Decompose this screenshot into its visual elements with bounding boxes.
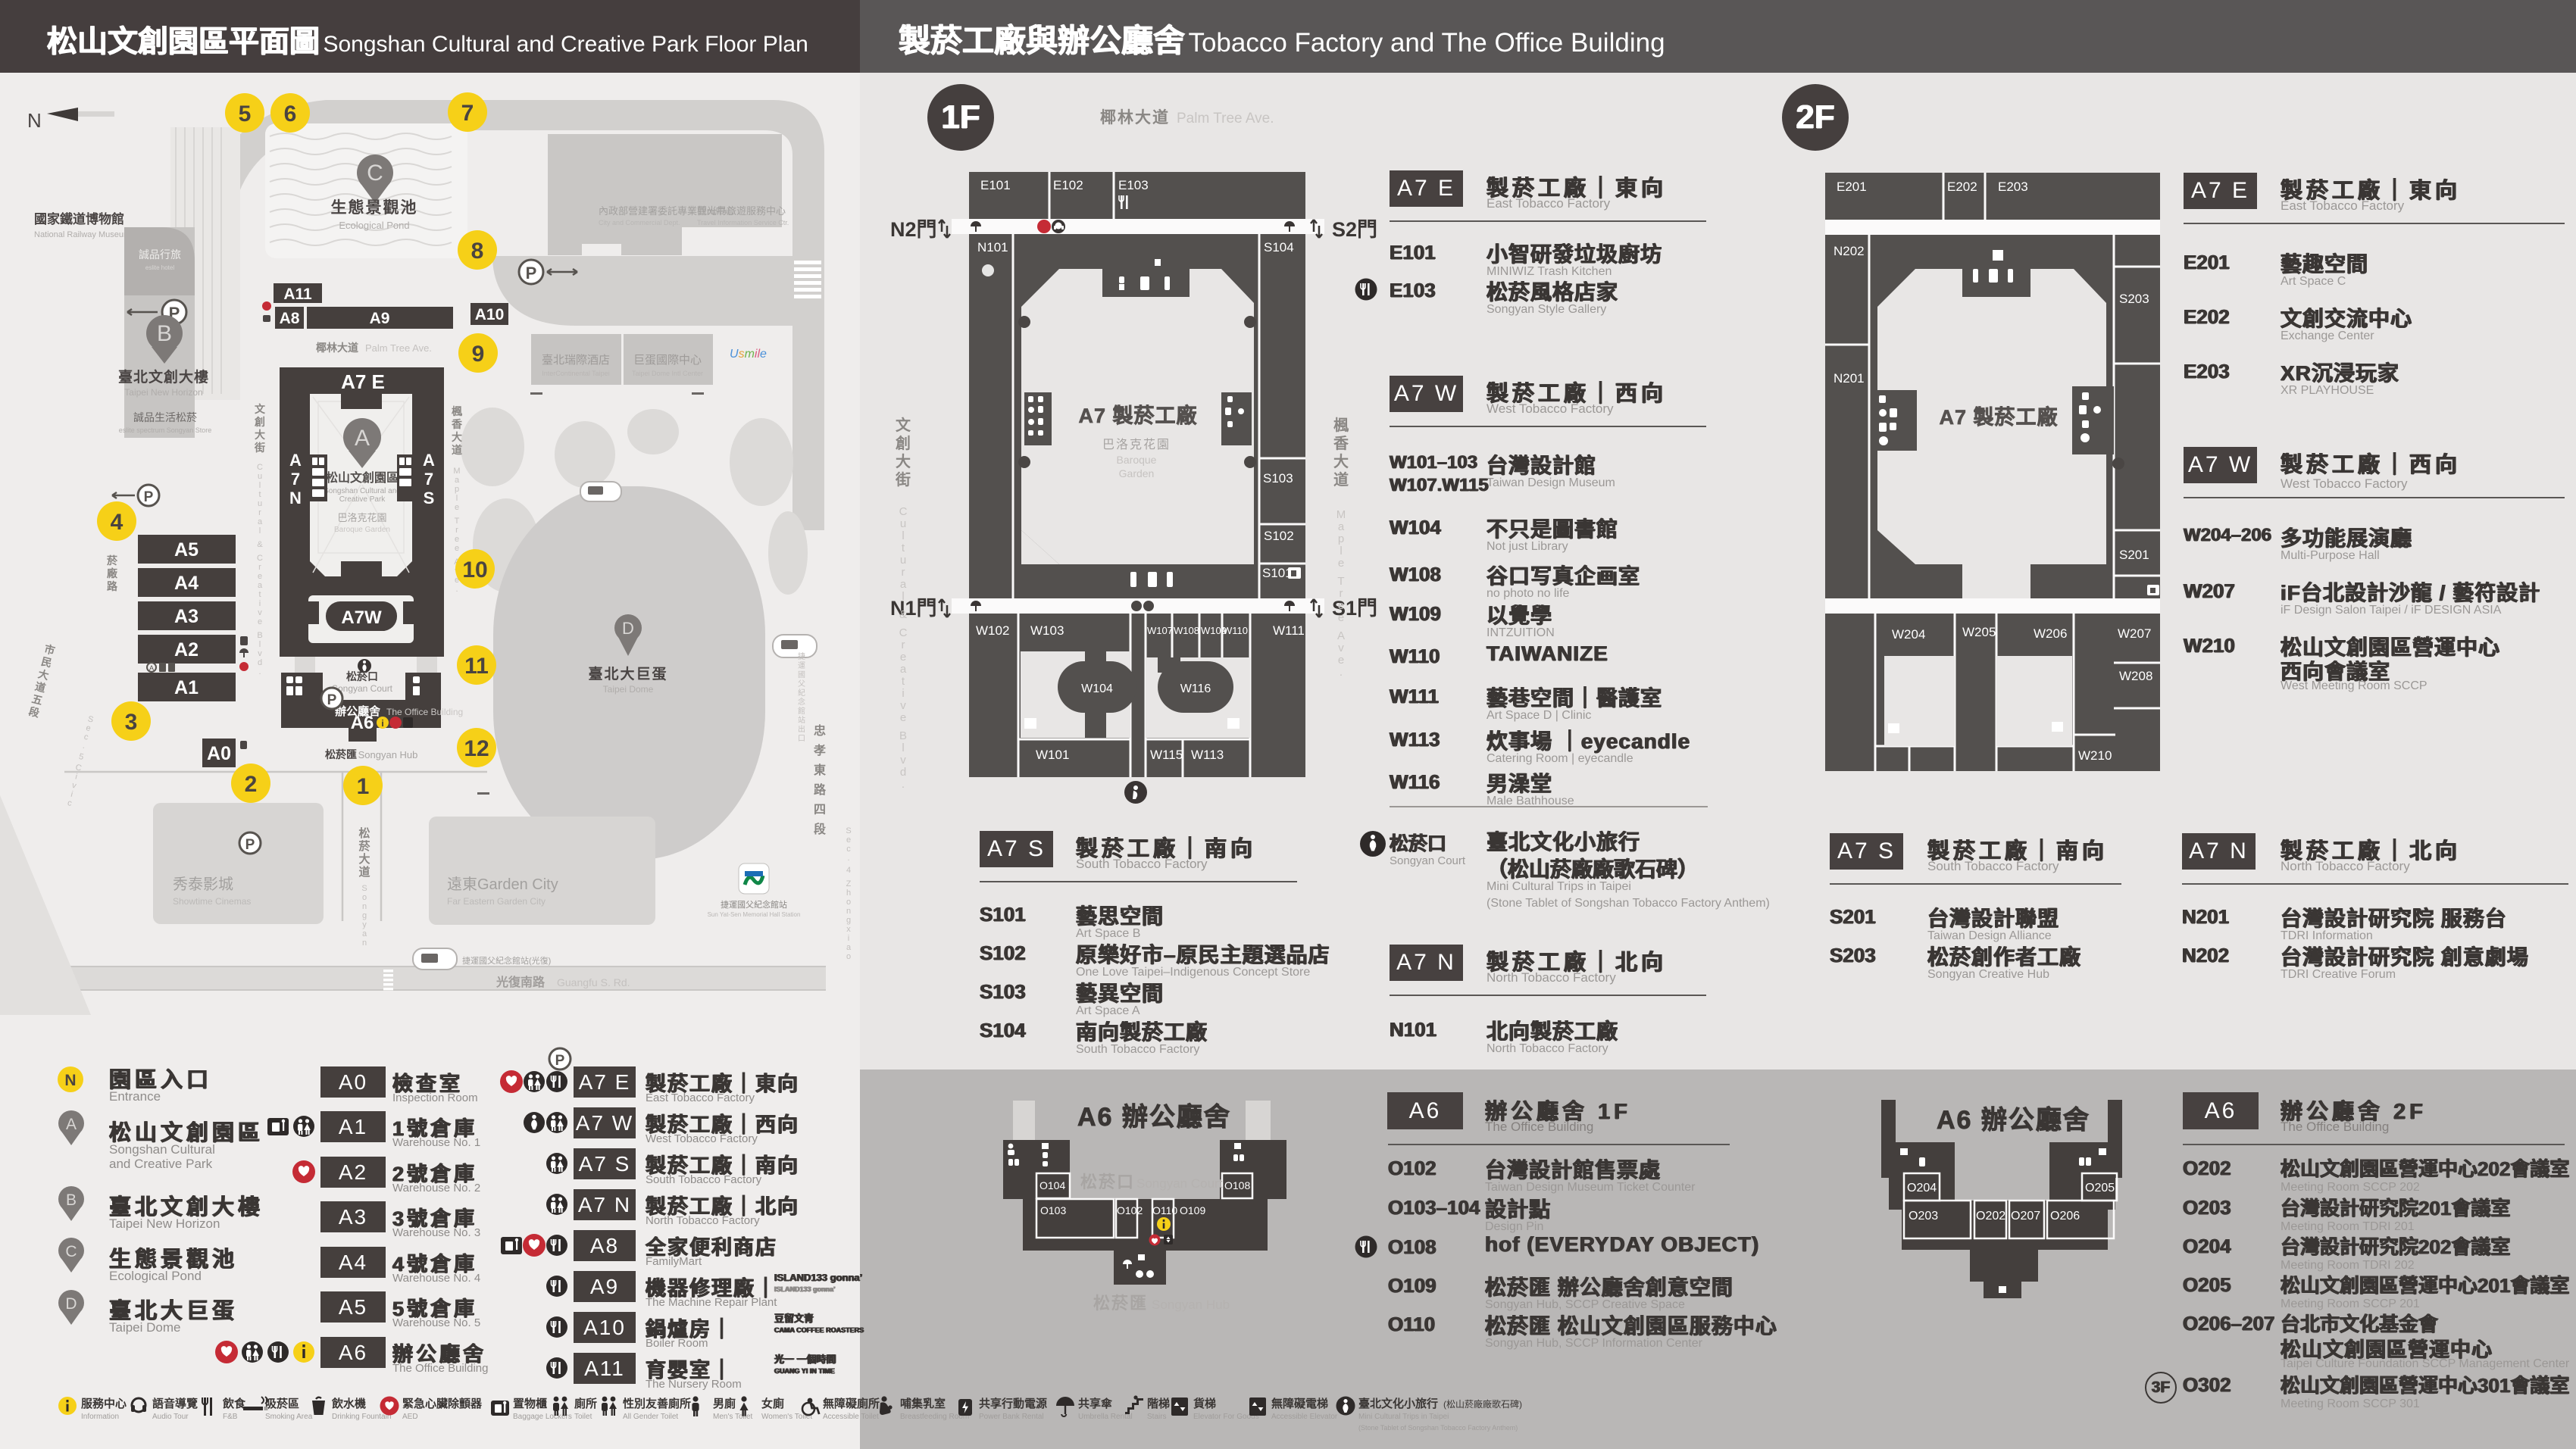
svg-text:6: 6 xyxy=(284,101,297,126)
svg-text:觀光局旅遊服務中心: 觀光局旅遊服務中心 xyxy=(697,205,786,217)
svg-text:T: T xyxy=(1337,575,1344,588)
svg-text:t: t xyxy=(902,675,905,688)
svg-text:道: 道 xyxy=(358,865,370,879)
svg-text:l: l xyxy=(456,494,458,503)
svg-text:A6: A6 xyxy=(351,713,374,733)
svg-text:W204: W204 xyxy=(1892,627,1925,642)
svg-text:i: i xyxy=(74,772,78,781)
svg-text:10: 10 xyxy=(462,557,487,582)
svg-text:A11: A11 xyxy=(283,286,312,303)
svg-text:u: u xyxy=(900,517,906,530)
svg-text:O203: O203 xyxy=(1909,1210,1938,1223)
svg-text:椰林大道: 椰林大道 xyxy=(316,342,358,354)
svg-text:大: 大 xyxy=(452,431,462,443)
svg-text:W103: W103 xyxy=(1030,623,1064,638)
svg-text:e: e xyxy=(900,651,906,664)
svg-text:C: C xyxy=(899,505,908,518)
svg-text:l: l xyxy=(259,526,261,536)
svg-text:N101: N101 xyxy=(977,240,1008,255)
svg-text:2: 2 xyxy=(245,772,258,797)
svg-text:E203: E203 xyxy=(1998,180,2028,194)
svg-text:哺集乳室: 哺集乳室 xyxy=(900,1397,946,1410)
svg-text:A7 E: A7 E xyxy=(579,1070,631,1094)
svg-text:e: e xyxy=(900,711,906,724)
svg-text:e: e xyxy=(1338,599,1344,612)
svg-text:9: 9 xyxy=(472,342,485,367)
svg-text:光復南路: 光復南路 xyxy=(496,975,546,989)
svg-text:語音導覽: 語音導覽 xyxy=(152,1397,198,1410)
svg-text:N1門: N1門 xyxy=(890,597,937,620)
svg-text:a: a xyxy=(258,517,263,526)
svg-text:無障礙廁所: 無障礙廁所 xyxy=(823,1397,880,1410)
svg-text:道: 道 xyxy=(452,444,462,456)
svg-text:S104: S104 xyxy=(1264,240,1294,255)
svg-text:段: 段 xyxy=(814,822,827,836)
svg-text:街: 街 xyxy=(895,470,911,489)
svg-text:o: o xyxy=(846,952,851,961)
svg-text:1: 1 xyxy=(357,774,370,799)
svg-text:貨梯: 貨梯 xyxy=(1193,1397,1216,1410)
svg-text:City and Commercial Dept.: City and Commercial Dept. xyxy=(599,219,680,226)
svg-text:松菸匯: 松菸匯 xyxy=(325,748,357,760)
svg-text:A7 製菸工廠: A7 製菸工廠 xyxy=(1939,405,2058,429)
svg-text:P: P xyxy=(245,837,255,853)
svg-text:d: d xyxy=(900,766,906,779)
svg-text:.: . xyxy=(82,742,86,751)
svg-text:路: 路 xyxy=(107,580,118,592)
svg-text:E202: E202 xyxy=(1947,180,1977,194)
svg-text:S: S xyxy=(846,826,851,835)
svg-text:S203: S203 xyxy=(2119,292,2149,306)
svg-text:A: A xyxy=(149,664,154,672)
svg-text:l: l xyxy=(259,640,261,649)
svg-text:M: M xyxy=(453,467,460,476)
svg-text:Far Eastern Garden City: Far Eastern Garden City xyxy=(447,896,546,907)
svg-text:D: D xyxy=(65,1295,77,1313)
svg-text:站: 站 xyxy=(798,715,805,725)
svg-text:l: l xyxy=(1340,545,1342,557)
svg-text:W207: W207 xyxy=(2118,626,2151,641)
svg-text:.: . xyxy=(455,585,458,594)
svg-text:椰林大道: 椰林大道 xyxy=(1100,108,1170,126)
svg-text:C: C xyxy=(65,1243,77,1260)
svg-text:W107: W107 xyxy=(1147,625,1173,636)
svg-text:i: i xyxy=(381,718,383,729)
svg-text:Drinking Fountain: Drinking Fountain xyxy=(332,1413,391,1421)
svg-text:Songyan Hub: Songyan Hub xyxy=(358,749,418,760)
svg-text:服務中心: 服務中心 xyxy=(81,1397,127,1410)
svg-text:11: 11 xyxy=(464,654,489,679)
svg-text:e: e xyxy=(455,503,459,512)
svg-text:A8: A8 xyxy=(590,1234,619,1257)
svg-text:O206: O206 xyxy=(2050,1210,2080,1223)
svg-text:A7 E: A7 E xyxy=(341,370,385,393)
svg-text:e: e xyxy=(1338,654,1344,667)
svg-text:i: i xyxy=(70,790,73,799)
svg-text:e: e xyxy=(846,835,851,845)
svg-text:W111: W111 xyxy=(1273,623,1305,638)
svg-text:r: r xyxy=(902,639,905,651)
svg-text:W102: W102 xyxy=(976,623,1009,638)
svg-text:A: A xyxy=(1337,629,1345,642)
svg-text:F&B: F&B xyxy=(223,1413,238,1421)
svg-text:A5: A5 xyxy=(174,539,199,561)
svg-text:性別友善廁所: 性別友善廁所 xyxy=(623,1397,691,1410)
svg-text:Songyan Hub: Songyan Hub xyxy=(1152,1298,1230,1312)
svg-text:A1: A1 xyxy=(339,1115,367,1138)
svg-text:.: . xyxy=(902,778,905,791)
svg-text:&: & xyxy=(257,540,263,549)
svg-text:巴洛克花園: 巴洛克花園 xyxy=(1102,438,1171,451)
svg-text:念: 念 xyxy=(798,697,805,707)
svg-text:道: 道 xyxy=(1333,470,1349,489)
svg-text:n: n xyxy=(362,902,367,911)
svg-text:緊急心臟除顫器: 緊急心臟除顫器 xyxy=(402,1397,483,1410)
svg-text:O202: O202 xyxy=(1976,1210,2005,1223)
svg-text:v: v xyxy=(258,608,262,617)
svg-text:A6 辦公廳舍: A6 辦公廳舍 xyxy=(1077,1102,1231,1132)
svg-text:O109: O109 xyxy=(1180,1204,1205,1216)
svg-text:S: S xyxy=(361,884,367,893)
svg-text:Audio Tour: Audio Tour xyxy=(152,1413,189,1421)
svg-text:W104: W104 xyxy=(1081,682,1113,695)
svg-text:Taipei New Horizon: Taipei New Horizon xyxy=(124,387,202,398)
svg-text:e: e xyxy=(455,535,459,544)
svg-text:E101: E101 xyxy=(980,178,1011,192)
svg-text:12: 12 xyxy=(464,736,489,761)
svg-text:Showtime Cinemas: Showtime Cinemas xyxy=(173,896,251,907)
svg-text:N: N xyxy=(289,489,302,507)
svg-text:A8: A8 xyxy=(280,310,300,327)
svg-text:香: 香 xyxy=(451,418,463,430)
svg-text:t: t xyxy=(902,542,905,554)
svg-text:大: 大 xyxy=(358,852,370,866)
svg-text:The Office Building: The Office Building xyxy=(386,707,463,717)
svg-text:i: i xyxy=(259,599,261,608)
svg-text:B: B xyxy=(66,1191,77,1209)
svg-text:A: A xyxy=(355,426,370,451)
svg-text:Usmile: Usmile xyxy=(730,348,767,361)
svg-text:W205: W205 xyxy=(1962,625,1996,639)
svg-text:O110: O110 xyxy=(1152,1204,1177,1216)
svg-text:N201: N201 xyxy=(1834,371,1865,386)
svg-text:松菸口: 松菸口 xyxy=(346,670,378,682)
svg-text:r: r xyxy=(902,566,905,579)
svg-text:e: e xyxy=(258,572,262,581)
svg-text:菸: 菸 xyxy=(358,839,370,853)
svg-text:道: 道 xyxy=(33,680,46,695)
svg-text:d: d xyxy=(258,658,262,667)
svg-text:5: 5 xyxy=(239,101,252,126)
svg-text:廁所: 廁所 xyxy=(574,1397,597,1410)
svg-text:A1: A1 xyxy=(174,677,199,698)
svg-text:共享行動電源: 共享行動電源 xyxy=(979,1397,1047,1410)
svg-text:A6 辦公廳舍: A6 辦公廳舍 xyxy=(1937,1105,2090,1135)
svg-text:出: 出 xyxy=(798,724,805,734)
svg-text:文: 文 xyxy=(896,416,911,434)
svg-text:楓: 楓 xyxy=(452,405,463,417)
svg-text:n: n xyxy=(362,938,367,948)
svg-text:C: C xyxy=(257,554,263,563)
svg-text:大: 大 xyxy=(1333,453,1349,470)
svg-text:遠東Garden City: 遠東Garden City xyxy=(447,876,558,893)
svg-text:五: 五 xyxy=(30,692,43,707)
svg-text:A10: A10 xyxy=(475,306,505,323)
svg-text:l: l xyxy=(259,481,261,490)
svg-text:A7 製菸工廠: A7 製菸工廠 xyxy=(1078,404,1197,427)
svg-text:Songyan Court: Songyan Court xyxy=(1136,1176,1223,1191)
svg-text:Smoking Area: Smoking Area xyxy=(265,1413,313,1421)
svg-text:8: 8 xyxy=(471,239,484,264)
svg-text:a: a xyxy=(900,663,907,676)
svg-text:大: 大 xyxy=(896,453,911,470)
svg-text:O103: O103 xyxy=(1040,1204,1066,1216)
svg-text:5: 5 xyxy=(78,752,85,762)
svg-text:S: S xyxy=(424,489,435,507)
svg-text:Guangfu S. Rd.: Guangfu S. Rd. xyxy=(557,976,630,988)
svg-text:4: 4 xyxy=(846,866,851,875)
svg-text:l: l xyxy=(902,529,904,542)
svg-text:a: a xyxy=(1338,520,1345,533)
svg-text:Umbrella Rental: Umbrella Rental xyxy=(1078,1413,1133,1421)
svg-text:N: N xyxy=(27,109,42,132)
svg-text:r: r xyxy=(258,508,261,517)
svg-text:a: a xyxy=(455,476,460,485)
svg-text:g: g xyxy=(362,911,367,920)
svg-text:口: 口 xyxy=(798,735,805,743)
svg-text:v: v xyxy=(1338,642,1344,654)
svg-text:市: 市 xyxy=(43,642,56,657)
svg-text:C: C xyxy=(257,463,263,472)
svg-text:o: o xyxy=(846,898,851,907)
svg-text:c: c xyxy=(846,845,851,854)
svg-text:eslite hotel: eslite hotel xyxy=(145,264,174,271)
svg-text:捷運國父紀念館站: 捷運國父紀念館站 xyxy=(721,899,787,910)
svg-text:民: 民 xyxy=(40,655,53,670)
svg-text:7: 7 xyxy=(424,470,433,489)
svg-text:A: A xyxy=(66,1116,77,1133)
svg-text:N: N xyxy=(64,1072,76,1089)
svg-text:楓: 楓 xyxy=(1333,416,1349,434)
svg-text:v: v xyxy=(258,649,262,658)
svg-text:M: M xyxy=(1336,508,1346,521)
svg-text:松山文創園區: 松山文創園區 xyxy=(326,470,399,485)
svg-text:誠品行旅: 誠品行旅 xyxy=(139,248,181,261)
svg-text:置物櫃: 置物櫃 xyxy=(513,1397,547,1410)
svg-text:菸: 菸 xyxy=(107,554,118,567)
svg-text:A3: A3 xyxy=(339,1205,367,1229)
svg-text:E201: E201 xyxy=(1837,180,1867,194)
svg-text:A10: A10 xyxy=(583,1316,626,1339)
svg-text:A4: A4 xyxy=(339,1251,367,1274)
svg-text:創: 創 xyxy=(895,434,911,452)
svg-text:W101: W101 xyxy=(1036,748,1069,762)
svg-text:Palm Tree Ave.: Palm Tree Ave. xyxy=(365,342,432,354)
svg-text:捷運國父紀念館站(光復): 捷運國父紀念館站(光復) xyxy=(462,955,551,966)
svg-text:Sun Yat-Sen Memorial Hall Stat: Sun Yat-Sen Memorial Hall Station xyxy=(708,911,801,918)
svg-text:A7 W: A7 W xyxy=(576,1111,633,1135)
svg-text:Mini Cultural Trips in Taipei: Mini Cultural Trips in Taipei xyxy=(1358,1413,1449,1421)
svg-text:eslite spectrum Songyan Store: eslite spectrum Songyan Store xyxy=(119,426,212,434)
svg-text:.: . xyxy=(258,667,261,676)
svg-text:文: 文 xyxy=(255,403,266,415)
svg-text:館: 館 xyxy=(798,706,805,716)
svg-text:A2: A2 xyxy=(339,1160,367,1184)
svg-text:A9: A9 xyxy=(370,310,390,327)
svg-text:B: B xyxy=(157,321,172,346)
svg-text:A5: A5 xyxy=(339,1295,367,1319)
svg-text:e: e xyxy=(1338,557,1344,570)
svg-text:街: 街 xyxy=(254,442,265,454)
svg-text:A4: A4 xyxy=(174,573,199,594)
svg-text:W113: W113 xyxy=(1191,748,1224,762)
svg-text:.: . xyxy=(847,854,849,863)
svg-text:P: P xyxy=(144,489,154,505)
svg-text:C: C xyxy=(899,626,908,639)
svg-text:e: e xyxy=(258,617,262,626)
svg-text:O207: O207 xyxy=(2011,1210,2040,1223)
svg-text:W110: W110 xyxy=(1223,625,1248,636)
svg-text:i: i xyxy=(902,687,904,700)
svg-text:四: 四 xyxy=(814,804,826,817)
svg-text:W108: W108 xyxy=(1174,625,1199,636)
svg-text:.: . xyxy=(1340,666,1343,679)
svg-text:松菸口: 松菸口 xyxy=(1080,1173,1135,1191)
svg-text:h: h xyxy=(846,888,851,898)
svg-text:階梯: 階梯 xyxy=(1147,1397,1170,1410)
svg-text:t: t xyxy=(258,490,261,499)
svg-text:Ecological Pond: Ecological Pond xyxy=(339,220,409,231)
svg-text:P: P xyxy=(526,264,537,283)
svg-text:S101: S101 xyxy=(1262,566,1293,580)
svg-text:國家鐵道博物館: 國家鐵道博物館 xyxy=(34,211,124,226)
svg-text:A6: A6 xyxy=(339,1341,367,1364)
svg-text:Stairs: Stairs xyxy=(1147,1413,1167,1421)
svg-text:A7W: A7W xyxy=(341,607,382,628)
svg-text:O102: O102 xyxy=(1117,1204,1143,1216)
svg-text:Palm Tree Ave.: Palm Tree Ave. xyxy=(1177,111,1274,126)
svg-text:g: g xyxy=(846,916,851,925)
svg-text:a: a xyxy=(900,578,907,591)
svg-text:E103: E103 xyxy=(1118,178,1149,192)
svg-text:v: v xyxy=(900,754,906,767)
svg-text:P: P xyxy=(327,692,337,708)
svg-text:p: p xyxy=(455,485,459,494)
svg-text:S102: S102 xyxy=(1264,529,1294,543)
svg-text:孝: 孝 xyxy=(813,743,826,757)
svg-text:W208: W208 xyxy=(2119,669,2152,683)
svg-text:T: T xyxy=(455,517,460,526)
svg-text:捷: 捷 xyxy=(798,651,805,661)
svg-text:Elevator For Goods: Elevator For Goods xyxy=(1193,1413,1259,1421)
svg-text:巴洛克花園: 巴洛克花園 xyxy=(337,512,386,523)
svg-text:生態景觀池: 生態景觀池 xyxy=(331,198,418,217)
svg-text:段: 段 xyxy=(27,705,40,720)
svg-text:r: r xyxy=(1340,587,1343,600)
svg-text:廠: 廠 xyxy=(107,567,118,579)
svg-text:E102: E102 xyxy=(1053,178,1083,192)
svg-text:Baroque Garden: Baroque Garden xyxy=(334,526,390,534)
svg-text:v: v xyxy=(900,699,906,712)
svg-text:O104: O104 xyxy=(1039,1179,1065,1191)
svg-text:4: 4 xyxy=(111,510,123,535)
svg-text:巨蛋國際中心: 巨蛋國際中心 xyxy=(633,354,702,367)
svg-text:B: B xyxy=(899,729,907,742)
svg-text:e: e xyxy=(1338,611,1344,624)
svg-text:S201: S201 xyxy=(2119,548,2149,562)
svg-text:u: u xyxy=(900,554,906,567)
svg-text:Creative Park: Creative Park xyxy=(339,495,386,504)
svg-text:Songshan Cultural and: Songshan Cultural and xyxy=(324,487,401,495)
svg-text:O205: O205 xyxy=(2085,1182,2115,1194)
svg-text:Taipei Dome: Taipei Dome xyxy=(603,684,654,695)
svg-text:x: x xyxy=(846,925,851,934)
svg-text:u: u xyxy=(258,472,262,481)
svg-text:Travel Information Service Ctr: Travel Information Service Ctr. xyxy=(697,219,789,226)
svg-text:n: n xyxy=(846,907,851,916)
svg-text:臺北文創大樓: 臺北文創大樓 xyxy=(118,368,209,386)
svg-text:7: 7 xyxy=(461,101,474,126)
svg-text:D: D xyxy=(622,619,634,638)
svg-text:無障礙電梯: 無障礙電梯 xyxy=(1271,1397,1328,1410)
svg-text:7: 7 xyxy=(291,470,300,489)
svg-text:路: 路 xyxy=(814,782,827,797)
svg-text:A7 N: A7 N xyxy=(578,1193,631,1216)
svg-text:東: 東 xyxy=(814,763,826,777)
svg-text:W206: W206 xyxy=(2034,626,2067,641)
svg-text:InterContinental Taipei: InterContinental Taipei xyxy=(542,370,609,377)
svg-text:i: i xyxy=(848,934,849,943)
svg-text:C: C xyxy=(367,161,383,186)
svg-text:(松山菸廠廠歌石碑): (松山菸廠廠歌石碑) xyxy=(1443,1398,1522,1410)
svg-text:r: r xyxy=(258,563,261,572)
svg-text:香: 香 xyxy=(1333,435,1349,452)
svg-text:p: p xyxy=(1338,532,1344,545)
svg-text:l: l xyxy=(902,590,904,603)
svg-text:e: e xyxy=(455,544,459,553)
svg-text:W210: W210 xyxy=(2078,748,2112,763)
svg-text:女廁: 女廁 xyxy=(761,1397,784,1410)
svg-text:Baroque: Baroque xyxy=(1117,454,1157,466)
svg-text:飲食: 飲食 xyxy=(222,1397,246,1410)
svg-text:Accessible Toilet: Accessible Toilet xyxy=(823,1413,879,1421)
svg-text:Toilet: Toilet xyxy=(574,1413,592,1421)
svg-text:運: 運 xyxy=(798,661,805,670)
svg-text:創: 創 xyxy=(254,416,265,428)
svg-text:父: 父 xyxy=(798,679,805,689)
svg-text:National Railway Museum: National Railway Museum xyxy=(34,230,130,239)
svg-text:A0: A0 xyxy=(207,743,231,764)
svg-text:&: & xyxy=(899,608,907,621)
svg-text:A9: A9 xyxy=(590,1275,619,1298)
svg-text:臺北大巨蛋: 臺北大巨蛋 xyxy=(588,665,667,682)
svg-text:r: r xyxy=(455,526,458,535)
svg-text:飲水機: 飲水機 xyxy=(331,1397,366,1410)
svg-text:大: 大 xyxy=(255,429,265,441)
svg-text:O108: O108 xyxy=(1224,1179,1250,1191)
svg-text:A0: A0 xyxy=(339,1070,367,1094)
svg-text:秀泰影城: 秀泰影城 xyxy=(173,876,233,893)
svg-text:3: 3 xyxy=(125,710,138,735)
svg-text:(Stone Tablet of Songshan Toba: (Stone Tablet of Songshan Tobacco Factor… xyxy=(1358,1424,1518,1432)
svg-text:AED: AED xyxy=(402,1413,418,1421)
svg-text:紀: 紀 xyxy=(798,688,805,698)
svg-text:Accessible Elevator: Accessible Elevator xyxy=(1271,1413,1338,1421)
svg-text:N202: N202 xyxy=(1834,244,1865,258)
svg-text:A7 S: A7 S xyxy=(579,1152,631,1176)
svg-text:All Gender Toilet: All Gender Toilet xyxy=(623,1413,678,1421)
svg-text:l: l xyxy=(902,742,904,754)
